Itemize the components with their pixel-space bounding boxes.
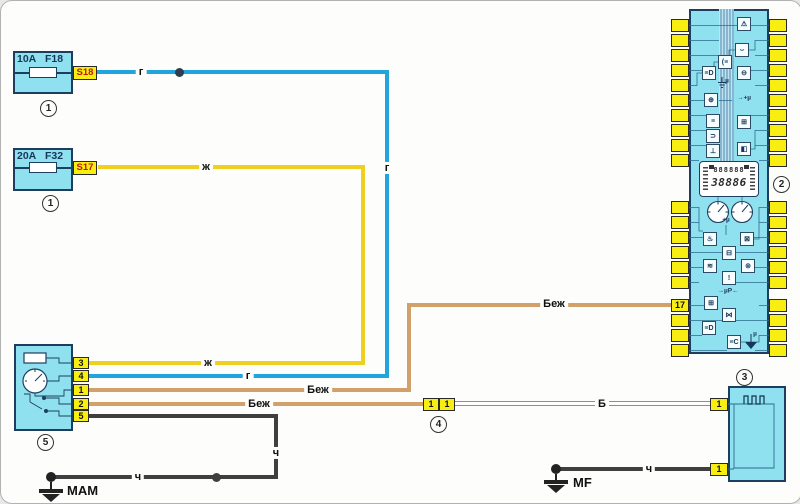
cluster-pin-left-top-2 [671,34,689,47]
fuse-f32-tag: S17 [73,161,97,175]
junction-dot-black [212,473,221,482]
cluster-pin-right-top-10 [769,154,787,167]
component3-pin-bottom: 1 [710,463,728,476]
lcd-corner-left [709,165,714,169]
cluster-pin-right-top-2 [769,34,787,47]
component5-pin-2: 2 [73,398,89,410]
wire-label-Б: Б [595,398,609,410]
cluster-pin-left-bottom-10 [671,344,689,357]
wire-beige-vertical [407,303,411,392]
wire-label-г: г [243,370,254,382]
wire-label-ч: ч [643,463,655,475]
component5-pin-1: 1 [73,384,89,396]
hood-open-icon: ⌣ [735,43,749,57]
cluster-pin-right-bottom-5 [769,261,787,274]
dim-lamp-icon: ≡C [727,335,741,349]
lcd-corner-right [744,165,749,169]
cluster-pin-left-bottom-3 [671,231,689,244]
ground-mam-bar [39,489,63,493]
wire-label-Беж: Беж [540,298,568,310]
cluster-pin-left-top-1 [671,19,689,32]
ground-mam-dot [46,472,56,482]
cluster-pin-right-bottom-9 [769,329,787,342]
ground-mf-label: MF [573,475,592,490]
wire-label-ж: ж [199,161,213,173]
wire-beige-pin1 [89,388,411,392]
cluster-pin-left-top-4 [671,64,689,77]
component5-pin-4: 4 [73,370,89,382]
connector4-badge: 4 [430,416,447,433]
cluster-pin-right-bottom-3 [769,231,787,244]
fuse-f18-code: F18 [45,54,63,65]
cluster-pin-right-top-1 [769,19,787,32]
wire-black-pin5 [89,414,276,418]
wire-label-ч: ч [270,447,282,459]
cluster-pin-right-bottom-2 [769,216,787,229]
cluster-label-microprocessor: →µP← [717,288,738,295]
component5-internal-wiring [14,344,73,431]
coolant-temp-icon: ≋ [703,259,717,273]
cluster-pin-left-bottom-9 [671,329,689,342]
cluster-pin-right-top-9 [769,139,787,152]
fuse-f18-amperage: 10A [17,54,36,65]
cluster-pin-left-bottom-6 [671,276,689,289]
battery-charge-icon: ≡ [706,114,720,128]
cluster-pin-right-bottom-6 [769,276,787,289]
wire-blue-vertical [385,70,389,378]
component5-pin-5: 5 [73,410,89,422]
component3-internal-wiring [728,386,786,482]
rear-fog-lamp-icon: (≡ [718,55,732,69]
cluster-pin-right-top-6 [769,94,787,107]
brake-wear-icon: ⊚ [741,259,755,273]
wire-yellow-bottom [89,361,363,365]
cluster-pin-left-top-10 [671,154,689,167]
fuse-f32-badge: 1 [42,195,59,212]
lcd-segment-bars-right [750,167,755,192]
warning-lamp-icon: ⚠ [737,17,751,31]
cluster-pin-right-bottom-7 [769,299,787,312]
door-open-icon: ⊃ [706,129,720,143]
battery-icon: ⊟ [722,246,736,260]
lcd-segment-bars-left [703,167,708,192]
cluster-pin-17: 17 [671,299,689,312]
handbrake-icon: ⊥ [706,144,720,158]
cluster-pin-right-top-5 [769,79,787,92]
ground-mam-stem [50,482,52,489]
junction-dot-blue [175,68,184,77]
low-fuel-icon: ◧ [737,142,751,156]
wire-white [455,401,710,406]
cluster-pin-left-top-6 [671,94,689,107]
wire-beige-to-pin17 [407,303,671,307]
cluster-pin-left-top-5 [671,79,689,92]
engine-check-icon: ⊕ [704,93,718,107]
square-wave-icon [744,396,764,404]
cluster-pin-left-bottom-2 [671,216,689,229]
oil-pressure-icon: ♨ [703,232,717,246]
cluster-pin-left-top-3 [671,49,689,62]
cluster-label-mu-plus2: +µ [722,217,730,224]
wire-label-ч: ч [132,471,144,483]
cluster-pin-right-top-8 [769,124,787,137]
wire-yellow-top [98,165,363,169]
ground-mf-dot [551,464,561,474]
high-beam-icon: ≡D [702,66,716,80]
wire-black-to-mam [51,475,278,479]
cluster-pin-right-top-4 [769,64,787,77]
cluster-label-mu-bottom: µ [753,331,757,338]
wiring-diagram-canvas: 10A F18 S18 1 20A F32 S17 1 34125 5 1 1 … [0,0,800,504]
fuse-f32-amperage: 20A [17,151,36,162]
component3-pin-top: 1 [710,398,728,411]
cluster-pin-left-bottom-1 [671,201,689,214]
component5-pin-3: 3 [73,357,89,369]
cluster-pin-left-top-9 [671,139,689,152]
cluster-pin-left-bottom-4 [671,246,689,259]
ground-mf-triangle [547,485,565,493]
wire-label-Беж: Беж [304,384,332,396]
component5-badge: 5 [37,434,54,451]
cluster-pin-left-top-8 [671,124,689,137]
cluster-pin-right-bottom-1 [769,201,787,214]
abs-icon: ⊞ [737,115,751,129]
wire-black-to-mf [556,467,710,471]
lamp-failure-icon: ⊠ [740,232,754,246]
low-beam-icon: ≡D [702,321,716,335]
cluster-pin-left-top-7 [671,109,689,122]
fuse-f32-code: F32 [45,151,63,162]
cluster-pin-right-bottom-10 [769,344,787,357]
wire-blue-bottom [89,374,389,378]
bulb-check-icon: ⋈ [722,308,736,322]
ground-mam-triangle [42,494,60,502]
cluster-lcd: 888888 38886 [699,161,759,197]
wire-label-Беж: Беж [245,398,273,410]
wire-label-г: г [382,162,393,174]
cluster-pin-left-bottom-8 [671,314,689,327]
heated-screen-icon: ⊞ [704,296,718,310]
cluster-pin-right-bottom-8 [769,314,787,327]
wire-label-ж: ж [201,357,215,369]
component3-badge: 3 [736,369,753,386]
side-lamp-icon: ⊖ [737,66,751,80]
fuse-f18-element [29,67,57,78]
ground-mam-label: МАМ [67,483,98,498]
fuse-f18-tag: S18 [73,66,97,80]
wire-yellow-vertical [361,165,365,365]
cluster-badge: 2 [773,176,790,193]
cluster-pin-left-bottom-5 [671,261,689,274]
brake-warning-icon: ! [722,271,736,285]
cluster-label-mu-plus: →+µ [737,95,751,102]
fuse-f32-element [29,162,57,173]
fuse-f18-badge: 1 [40,100,57,117]
connector4-pin-a: 1 [423,398,439,411]
cluster-label-mu-top: µ [725,78,729,85]
cluster-pin-right-bottom-4 [769,246,787,259]
cluster-pin-right-top-7 [769,109,787,122]
wire-label-г: г [136,66,147,78]
connector4-pin-b: 1 [439,398,455,411]
ground-mf-bar [544,480,568,484]
cluster-pin-right-top-3 [769,49,787,62]
